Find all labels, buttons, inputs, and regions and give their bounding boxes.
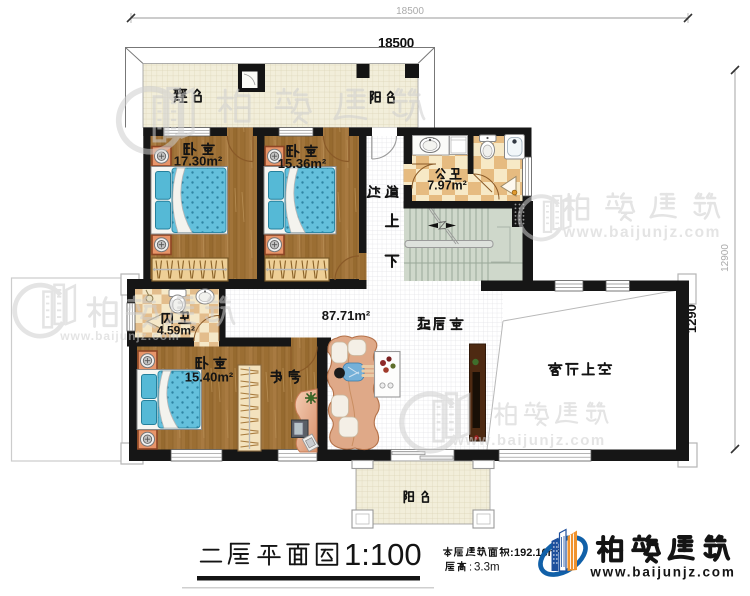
svg-text:www.baijunjz.com: www.baijunjz.com (589, 565, 735, 580)
svg-text:1:100: 1:100 (344, 537, 422, 572)
svg-text:www.baijunjz.com: www.baijunjz.com (59, 329, 180, 343)
svg-text:15.40m²: 15.40m² (185, 370, 234, 385)
svg-text:www.baijunjz.com: www.baijunjz.com (451, 432, 605, 449)
svg-text:3.3m: 3.3m (474, 562, 500, 574)
svg-text:12900: 12900 (720, 244, 731, 272)
svg-text:18500: 18500 (396, 6, 424, 17)
svg-text:17.30m²: 17.30m² (174, 154, 223, 169)
svg-text:87.71m²: 87.71m² (322, 308, 371, 323)
svg-text:7.97m²: 7.97m² (427, 179, 467, 193)
svg-text:www.baijunjz.com: www.baijunjz.com (562, 224, 721, 241)
svg-text:15.36m²: 15.36m² (278, 156, 327, 171)
svg-text::: : (469, 562, 472, 574)
svg-text:18500: 18500 (378, 36, 414, 51)
